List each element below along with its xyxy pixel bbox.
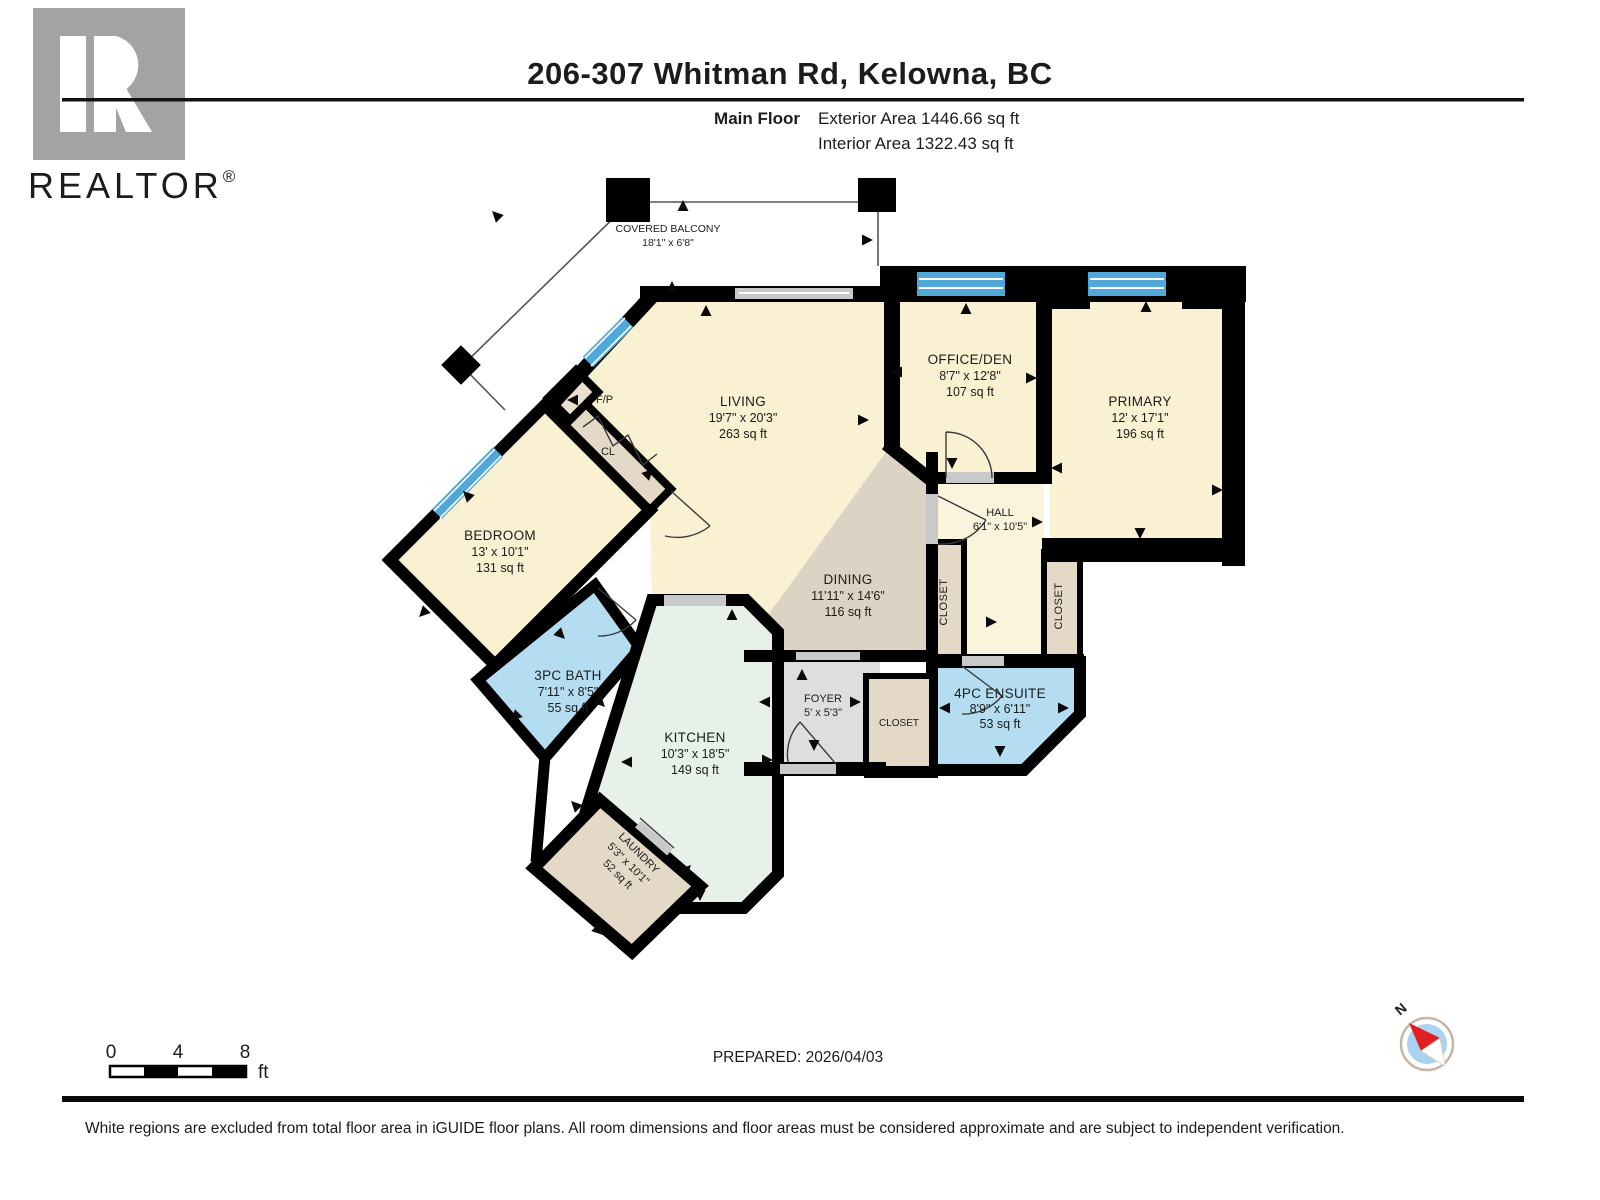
- office-den-area: 107 sq ft: [946, 385, 994, 399]
- bedroom-area: 131 sq ft: [476, 561, 524, 575]
- kitchen-label: KITCHEN: [664, 730, 725, 745]
- living-label: LIVING: [720, 394, 766, 409]
- balcony-dims: 18'1" x 6'8": [642, 237, 694, 249]
- bedroom-label: BEDROOM: [464, 528, 536, 543]
- scale-unit: ft: [258, 1062, 269, 1083]
- balcony-post: [606, 178, 650, 222]
- dimension-arrow: [488, 207, 504, 223]
- living-area: 263 sq ft: [719, 427, 767, 441]
- dining-dims: 11'11" x 14'6": [811, 589, 885, 603]
- room-hall-corridor: [964, 544, 1044, 660]
- compass-north-label: N: [1392, 1000, 1410, 1019]
- room-4pc-ensuite: [932, 662, 1080, 770]
- bedroom-dims: 13' x 10'1": [471, 545, 528, 559]
- office-den-dims: 8'7" x 12'8": [939, 369, 1001, 383]
- hall-label: HALL: [986, 507, 1014, 519]
- prepared-date: PREPARED: 2026/04/03: [713, 1049, 883, 1066]
- ensuite-area: 53 sq ft: [980, 717, 1022, 731]
- balcony-label: COVERED BALCONY: [615, 223, 720, 235]
- scale-bar: 0 4 8 ft: [106, 1042, 270, 1083]
- dimension-arrow: [862, 235, 873, 246]
- bath-3pc-area: 55 sq ft: [548, 701, 590, 715]
- living-dims: 19'7" x 20'3": [709, 411, 778, 425]
- kitchen-dims: 10'3" x 18'5": [661, 747, 730, 761]
- exterior-area: Exterior Area 1446.66 sq ft: [818, 109, 1020, 128]
- closet-hall-right-label: CLOSET: [1053, 582, 1065, 629]
- bath-3pc-label: 3PC BATH: [534, 668, 601, 683]
- ensuite-dims: 8'9" x 6'11": [970, 702, 1031, 716]
- footer-disclaimer: White regions are excluded from total fl…: [85, 1120, 1345, 1137]
- page-title: 206-307 Whitman Rd, Kelowna, BC: [527, 56, 1052, 91]
- compass: N: [1392, 1000, 1453, 1070]
- closet-hall-left-label: CLOSET: [938, 578, 950, 625]
- dining-label: DINING: [823, 572, 872, 587]
- footer-divider: [62, 1096, 1524, 1102]
- foyer-dims: 5' x 5'3": [804, 707, 842, 719]
- realtor-logo-word: REALTOR®: [28, 165, 239, 206]
- header-divider: [62, 98, 1524, 102]
- hall-dims: 6'1" x 10'5": [973, 521, 1027, 533]
- office-den-label: OFFICE/DEN: [928, 352, 1013, 367]
- primary-dims: 12' x 17'1": [1111, 411, 1168, 425]
- closet-cl-label: CL: [601, 446, 615, 458]
- fireplace-label: F/P: [596, 394, 613, 406]
- interior-area: Interior Area 1322.43 sq ft: [818, 134, 1014, 153]
- ensuite-label: 4PC ENSUITE: [954, 686, 1046, 701]
- primary-label: PRIMARY: [1108, 394, 1171, 409]
- dimension-arrow: [415, 605, 431, 621]
- realtor-logo: [33, 8, 185, 160]
- scale-tick-0: 0: [106, 1042, 117, 1063]
- balcony-post: [858, 178, 896, 212]
- bath-laundry-wall: [536, 756, 545, 862]
- floor-label: Main Floor: [714, 109, 800, 128]
- closet-foyer-label: CLOSET: [879, 718, 919, 729]
- primary-area: 196 sq ft: [1116, 427, 1164, 441]
- bath-3pc-dims: 7'11" x 8'5": [538, 685, 599, 699]
- scale-tick-4: 4: [173, 1042, 184, 1063]
- dining-area: 116 sq ft: [824, 605, 872, 619]
- kitchen-area: 149 sq ft: [671, 763, 719, 777]
- scale-tick-8: 8: [240, 1042, 251, 1063]
- floorplan-canvas: REALTOR® 206-307 Whitman Rd, Kelowna, BC…: [0, 0, 1600, 1200]
- foyer-label: FOYER: [804, 693, 842, 705]
